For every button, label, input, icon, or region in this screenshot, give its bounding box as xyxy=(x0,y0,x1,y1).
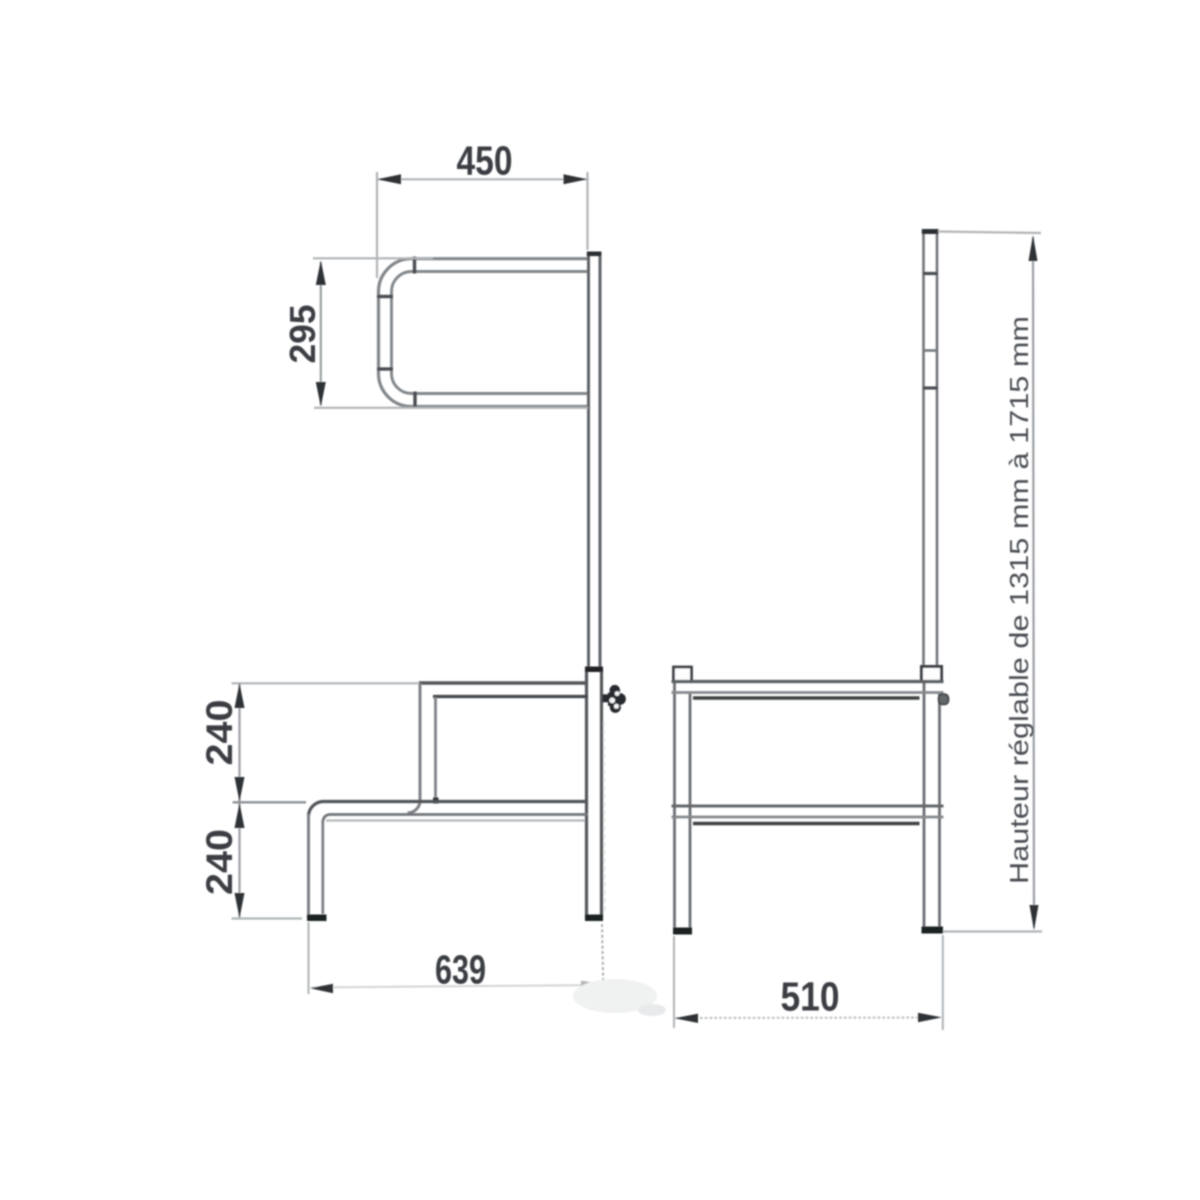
svg-text:240: 240 xyxy=(199,700,240,766)
svg-text:240: 240 xyxy=(199,829,240,895)
svg-text:450: 450 xyxy=(457,138,513,184)
svg-text:Hauteur réglable de 1315 mm à: Hauteur réglable de 1315 mm à 1715 mm xyxy=(1004,316,1034,884)
svg-text:295: 295 xyxy=(282,305,323,364)
svg-text:510: 510 xyxy=(781,974,840,1020)
svg-text:639: 639 xyxy=(435,947,486,993)
